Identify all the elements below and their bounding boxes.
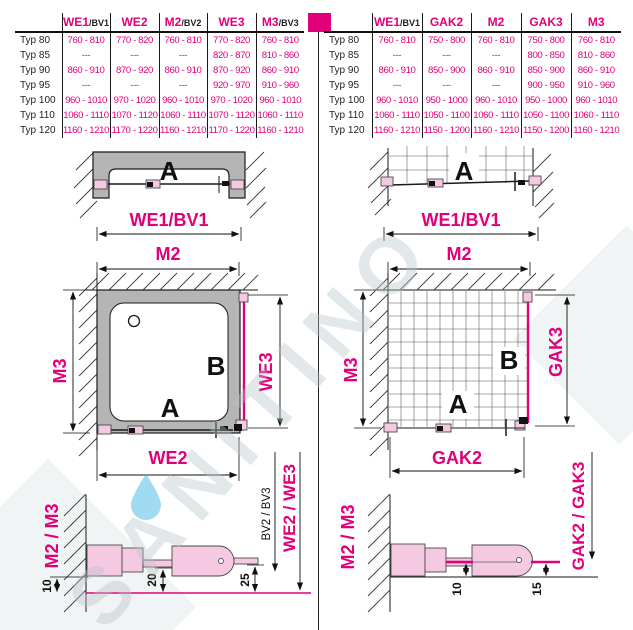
col-header-strong: WE1 [374,15,400,29]
bottom-right-drawing: M2 / M3 10 15 GAK2 / GAK3 [338,452,598,612]
cell-value: 920 - 970 [207,78,256,93]
cell-value: 900 - 950 [521,78,571,93]
col-header: WE1/BV1 [372,13,422,32]
cell-value: 1150 - 1200 [422,123,471,138]
cell-value: 770 - 820 [207,32,256,48]
panel-letter-a: A [161,393,180,423]
table-row: Typ 95---------920 - 970910 - 960 [15,78,304,93]
col-header-strong: M2 [165,15,182,29]
dim-label-we2: WE2 [148,448,187,468]
wall-profile [87,545,122,576]
table-row: Typ 80760 - 810750 - 800760 - 810750 - 8… [324,32,621,48]
cell-value: 910 - 960 [571,78,621,93]
cell-value: 810 - 860 [571,48,621,63]
cell-value: 760 - 810 [159,32,207,48]
dim-label-bv: BV2 / BV3 [261,487,273,540]
cell-value: 1160 - 1210 [372,123,422,138]
cell-value: --- [62,78,110,93]
row-label: Typ 80 [15,32,62,48]
technical-drawings: A WE1/BV1 [0,140,633,630]
row-label: Typ 95 [15,78,62,93]
dim-label-m3: M3 [50,358,70,383]
row-label: Typ 100 [15,93,62,108]
dim-label-we3: WE3 [256,352,276,391]
cell-value: 960 - 1010 [471,93,521,108]
row-label: Typ 95 [324,78,372,93]
drain [129,316,140,327]
col-header-rest: /BV1 [89,18,109,28]
cell-value: 870 - 920 [110,63,159,78]
cell-value: 1050 - 1100 [521,108,571,123]
cell-value: 860 - 910 [571,63,621,78]
cell-value: 970 - 1020 [110,93,159,108]
col-header: M3 [571,13,621,32]
cell-value: --- [62,48,110,63]
cell-value: 960 - 1010 [62,93,110,108]
door-profile [472,545,533,576]
wall-hatch [64,494,86,612]
cell-value: 1070 - 1120 [110,108,159,123]
dim-label-m3: M3 [341,357,361,382]
dim-label-m2m3: M2 / M3 [338,504,358,569]
dim-value: 25 [238,573,252,587]
col-header: M3/BV3 [256,13,304,32]
cell-value: 750 - 800 [521,32,571,48]
wall-hatch-left [79,278,97,456]
cell-value: 1060 - 1110 [471,108,521,123]
cell-value: 1060 - 1110 [571,108,621,123]
table-row: Typ 100960 - 1010970 - 1020960 - 1010970… [15,93,304,108]
cell-value: 1060 - 1110 [62,108,110,123]
table-row: Typ 1201160 - 12101150 - 12001160 - 1210… [324,123,621,138]
cell-value: 1160 - 1210 [159,123,207,138]
table-row: Typ 100960 - 1010950 - 1000960 - 1010950… [324,93,621,108]
panel-letter: A [160,156,179,186]
dim-value: 20 [145,573,159,587]
row-label: Typ 90 [324,63,372,78]
col-header-strong: WE1 [63,15,89,29]
dim-label-m2: M2 [446,244,471,264]
cell-value: 860 - 910 [471,63,521,78]
bottom-left-drawing: M2 / M3 10 20 25 BV2 [40,452,311,612]
table-row: Typ 1101060 - 11101050 - 11001060 - 1110… [324,108,621,123]
table-row: Typ 80760 - 810770 - 820760 - 810770 - 8… [15,32,304,48]
cell-value: 760 - 810 [256,32,304,48]
cell-value: 970 - 1020 [207,93,256,108]
row-label: Typ 120 [15,123,62,138]
wall-hatch [368,494,390,612]
col-header: WE3 [207,13,256,32]
wall-profile [391,544,425,576]
cell-value: --- [159,48,207,63]
mid-right-drawing: M2 [341,244,575,478]
cell-value: 860 - 910 [159,63,207,78]
cell-value: 850 - 900 [422,63,471,78]
col-header-strong: M2 [488,15,505,29]
row-label: Typ 110 [15,108,62,123]
row-label: Typ 85 [324,48,372,63]
row-label: Typ 80 [324,32,372,48]
top-right-drawing: A WE1/BV1 [368,146,554,241]
dim-label-we: WE2 / WE3 [280,464,299,552]
cell-value: 950 - 1000 [521,93,571,108]
dim-value: 10 [450,582,464,596]
cell-value: 860 - 910 [256,63,304,78]
header-row: WE1/BV1GAK2M2GAK3M3 [324,13,621,32]
cell-value: 760 - 810 [471,32,521,48]
cell-value: 1150 - 1200 [521,123,571,138]
cell-value: 760 - 810 [372,32,422,48]
col-header-strong: GAK3 [529,15,562,29]
column-divider [318,32,319,630]
col-header-strong: M3 [588,15,605,29]
cell-value: 1060 - 1110 [256,108,304,123]
cell-value: 1070 - 1120 [207,108,256,123]
table-row: Typ 85---------800 - 850810 - 860 [324,48,621,63]
col-header-rest: /BV3 [279,18,299,28]
cell-value: 960 - 1010 [571,93,621,108]
cell-value: 960 - 1010 [159,93,207,108]
size-table-right: WE1/BV1GAK2M2GAK3M3 Typ 80760 - 810750 -… [324,13,621,138]
mid-left-drawing: M2 [50,244,288,481]
dim-label-gak3: GAK3 [546,327,566,377]
cell-value: 810 - 860 [256,48,304,63]
dim-value: 10 [40,579,54,593]
cell-value: 860 - 910 [62,63,110,78]
cell-value: 760 - 810 [571,32,621,48]
cell-value: 860 - 910 [372,63,422,78]
cell-value: --- [372,78,422,93]
cell-value: 760 - 810 [62,32,110,48]
cell-value: 1060 - 1110 [372,108,422,123]
col-header: WE1/BV1 [62,13,110,32]
table-row: Typ 90860 - 910850 - 900860 - 910850 - 9… [324,63,621,78]
col-header-strong: GAK2 [430,15,463,29]
header-row: WE1/BV1WE2M2/BV2WE3M3/BV3 [15,13,304,32]
dim-label: WE1/BV1 [421,210,500,230]
table-row: Typ 1101060 - 11101070 - 11201060 - 1110… [15,108,304,123]
row-label: Typ 85 [15,48,62,63]
cell-value: 960 - 1010 [256,93,304,108]
cell-value: --- [110,78,159,93]
cell-value: 960 - 1010 [372,93,422,108]
table-row: Typ 90860 - 910870 - 920860 - 910870 - 9… [15,63,304,78]
panel-letter: A [455,156,474,186]
table-row: Typ 85---------820 - 870810 - 860 [15,48,304,63]
col-header: GAK2 [422,13,471,32]
dim-label-gak: GAK2 / GAK3 [569,462,588,571]
panel-letter-b: B [207,351,226,381]
dim-label-m2m3: M2 / M3 [42,503,62,568]
dim-label-m2: M2 [155,244,180,264]
col-header: GAK3 [521,13,571,32]
dim-label-gak2: GAK2 [432,448,482,468]
cell-value: 1170 - 1220 [207,123,256,138]
row-label: Typ 90 [15,63,62,78]
row-label: Typ 100 [324,93,372,108]
size-table-left: WE1/BV1WE2M2/BV2WE3M3/BV3 Typ 80760 - 81… [15,13,304,138]
wall-hatch-top [92,273,258,290]
wall-hatch-top [383,273,554,290]
col-header-strong: M3 [262,15,279,29]
dim-value: 15 [530,582,544,596]
door-profile [172,546,234,576]
dim-label: WE1/BV1 [129,210,208,230]
cell-value: 750 - 800 [422,32,471,48]
row-label: Typ 120 [324,123,372,138]
cell-value: 910 - 960 [256,78,304,93]
cell-value: 770 - 820 [110,32,159,48]
cell-value: 950 - 1000 [422,93,471,108]
top-left-drawing: A WE1/BV1 [74,152,266,241]
cell-value: 1060 - 1110 [159,108,207,123]
cell-value: --- [471,48,521,63]
cell-value: 820 - 870 [207,48,256,63]
col-header-rest: /BV1 [400,18,420,28]
cell-value: 800 - 850 [521,48,571,63]
cell-value: 1160 - 1210 [256,123,304,138]
cell-value: 850 - 900 [521,63,571,78]
table-row: Typ 95---------900 - 950910 - 960 [324,78,621,93]
col-header: WE2 [110,13,159,32]
cell-value: --- [422,48,471,63]
panel-letter-a: A [449,389,468,419]
cell-value: --- [372,48,422,63]
col-header-strong: WE3 [218,15,244,29]
cell-value: --- [422,78,471,93]
row-label: Typ 110 [324,108,372,123]
cell-value: --- [159,78,207,93]
cell-value: --- [471,78,521,93]
cell-value: 870 - 920 [207,63,256,78]
cell-value: 1160 - 1210 [471,123,521,138]
cell-value: 1160 - 1210 [571,123,621,138]
corner-cell [15,13,62,32]
col-header: M2 [471,13,521,32]
cell-value: --- [110,48,159,63]
panel-letter-b: B [500,345,519,375]
col-header: M2/BV2 [159,13,207,32]
table-row: Typ 1201160 - 12101170 - 12201160 - 1210… [15,123,304,138]
corner-cell [324,13,372,32]
cell-value: 1160 - 1210 [62,123,110,138]
cell-value: 1050 - 1100 [422,108,471,123]
col-header-rest: /BV2 [181,18,201,28]
spec-sheet: WE1/BV1WE2M2/BV2WE3M3/BV3 Typ 80760 - 81… [0,0,633,630]
col-header-strong: WE2 [121,15,147,29]
cell-value: 1170 - 1220 [110,123,159,138]
